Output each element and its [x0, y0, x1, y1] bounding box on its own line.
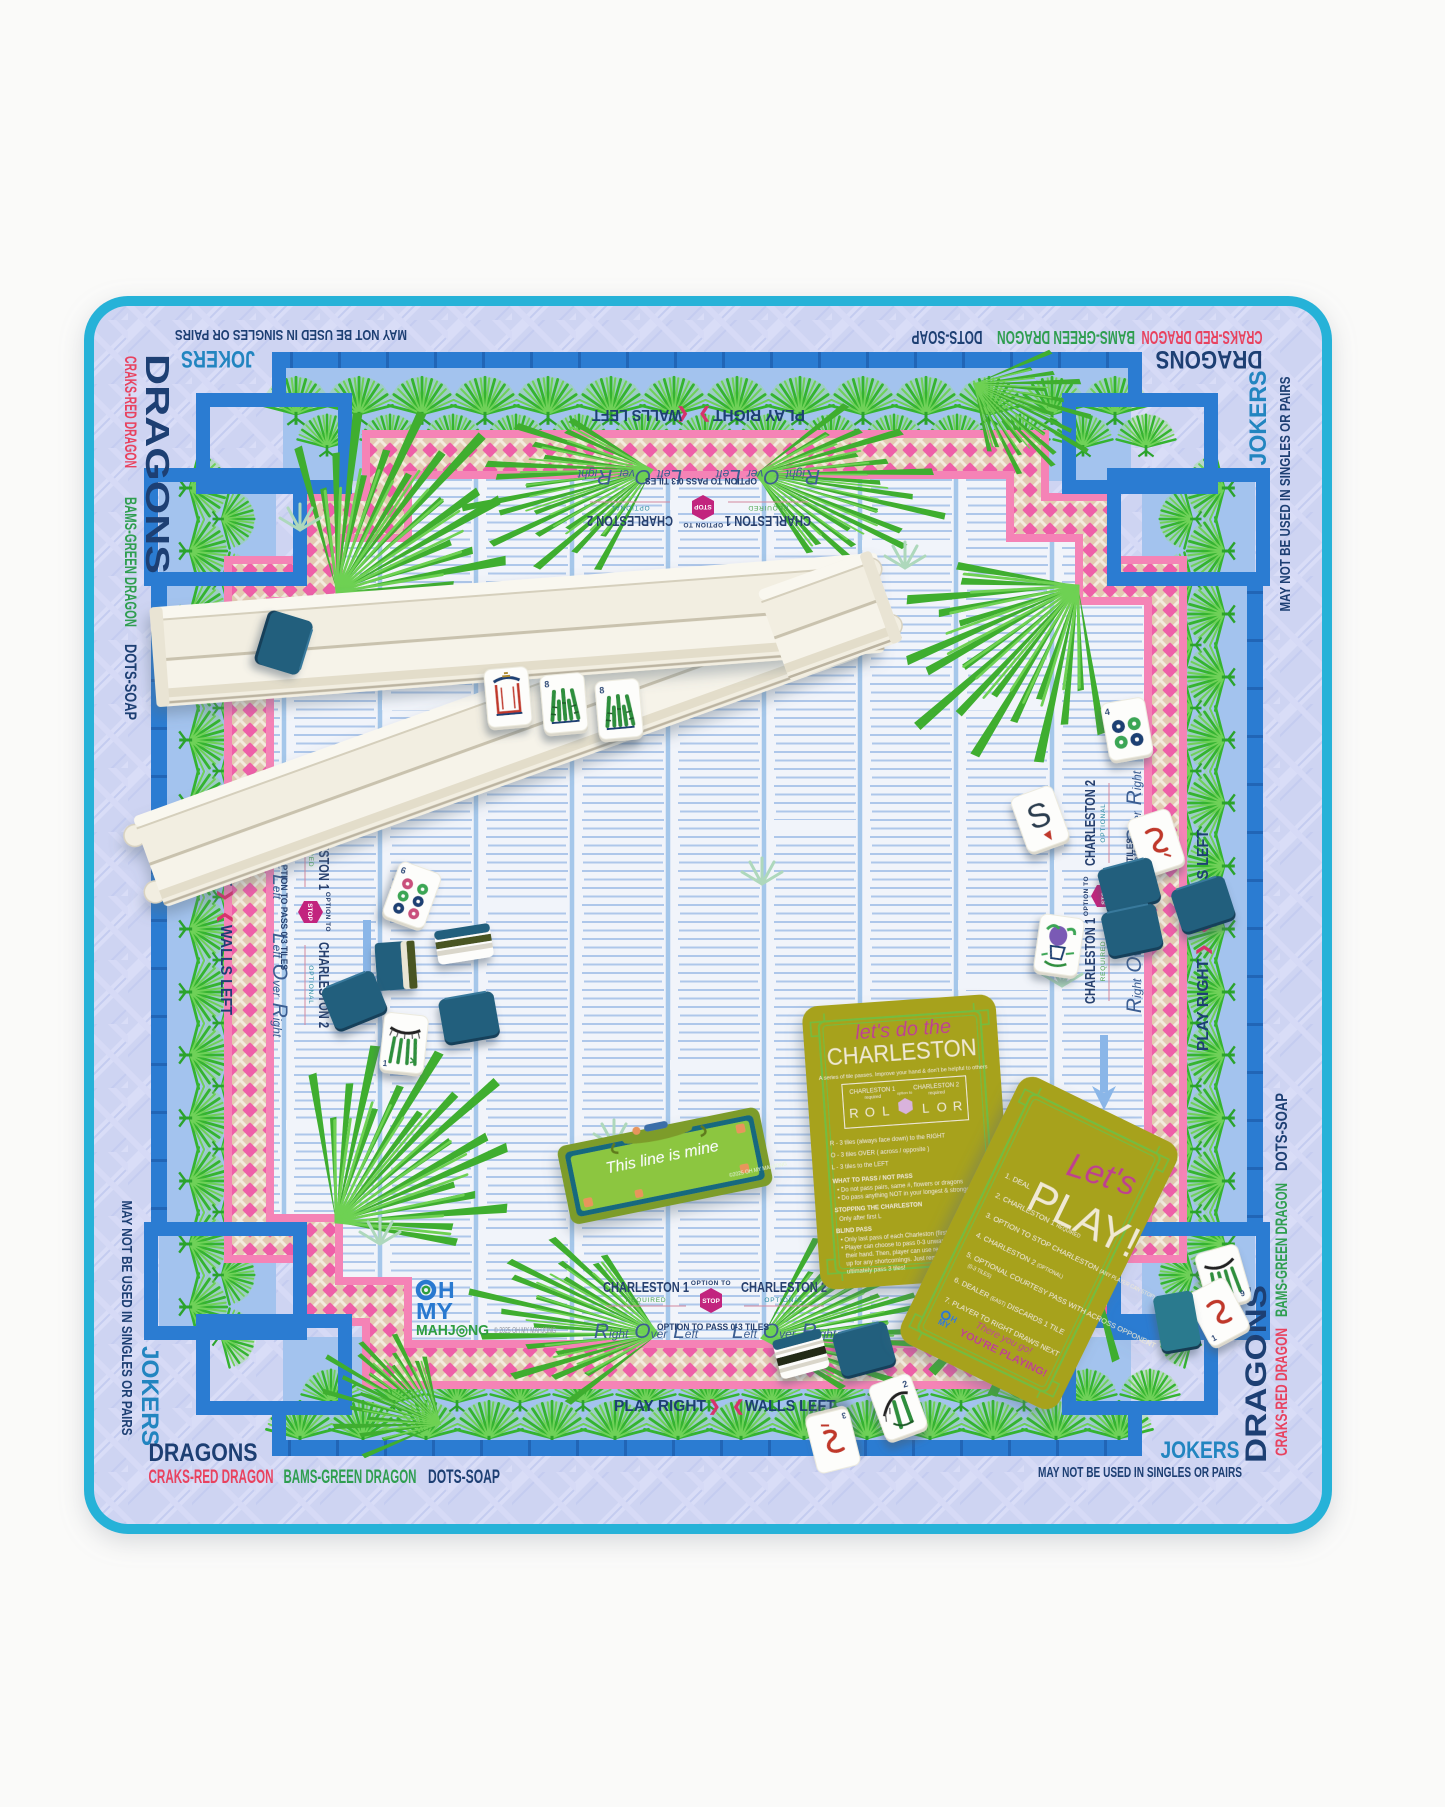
- svg-text:PLAY RIGHT: PLAY RIGHT: [713, 406, 805, 423]
- svg-text:MAHJ◎NG: MAHJ◎NG: [416, 1322, 489, 1339]
- svg-text:CRAKS-RED DRAGON: CRAKS-RED DRAGON: [121, 356, 140, 468]
- svg-text:❮: ❮: [732, 1398, 745, 1415]
- svg-text:CRAKS-RED DRAGON: CRAKS-RED DRAGON: [149, 1467, 274, 1488]
- svg-text:DRAGONS: DRAGONS: [149, 1439, 258, 1467]
- svg-text:O: O: [864, 1104, 875, 1120]
- svg-text:OPTION TO PASS 0-3 TILES: OPTION TO PASS 0-3 TILES: [657, 1322, 769, 1333]
- svg-text:BAMS-GREEN DRAGON: BAMS-GREEN DRAGON: [1272, 1183, 1291, 1317]
- svg-text:BAMS-GREEN DRAGON: BAMS-GREEN DRAGON: [121, 497, 140, 627]
- svg-text:WALLS LEFT: WALLS LEFT: [217, 925, 234, 1015]
- svg-text:❯: ❯: [708, 1398, 721, 1415]
- svg-text:R: R: [952, 1098, 962, 1114]
- svg-text:CHARLESTON 1: CHARLESTON 1: [603, 1279, 689, 1296]
- svg-text:JOKERS: JOKERS: [1245, 371, 1272, 466]
- svg-text:DRAGONS: DRAGONS: [139, 354, 176, 574]
- svg-text:OPTIONAL: OPTIONAL: [764, 1297, 803, 1304]
- svg-text:❯: ❯: [1195, 943, 1212, 956]
- svg-text:JOKERS: JOKERS: [1161, 1437, 1240, 1464]
- svg-text:L: L: [882, 1103, 890, 1118]
- svg-text:❯: ❯: [217, 889, 234, 902]
- svg-text:❮: ❮: [217, 911, 234, 924]
- svg-text:MAY NOT BE USED IN SINGLES OR: MAY NOT BE USED IN SINGLES OR PAIRS: [1277, 377, 1294, 612]
- svg-text:JOKERS: JOKERS: [181, 345, 255, 372]
- svg-text:STOP: STOP: [702, 1298, 720, 1305]
- svg-text:MAY NOT BE USED IN SINGLES OR: MAY NOT BE USED IN SINGLES OR PAIRS: [118, 1201, 135, 1436]
- svg-text:L: L: [922, 1100, 930, 1115]
- svg-text:MAY NOT BE USED IN SINGLES OR: MAY NOT BE USED IN SINGLES OR PAIRS: [175, 326, 407, 343]
- svg-text:8: 8: [544, 679, 550, 689]
- svg-text:PLAY RIGHT: PLAY RIGHT: [614, 1398, 706, 1415]
- svg-text:DOTS-SOAP: DOTS-SOAP: [912, 327, 983, 347]
- svg-text:MY: MY: [416, 1298, 453, 1324]
- svg-text:DRAGONS: DRAGONS: [1240, 1285, 1273, 1463]
- svg-text:CHARLESTON 2: CHARLESTON 2: [741, 1279, 827, 1296]
- svg-text:WALLS LEFT: WALLS LEFT: [592, 406, 682, 423]
- svg-text:REQUIRED: REQUIRED: [626, 1297, 667, 1304]
- svg-text:DOTS-SOAP: DOTS-SOAP: [1272, 1093, 1291, 1171]
- svg-text:BAMS-GREEN DRAGON: BAMS-GREEN DRAGON: [997, 327, 1135, 347]
- svg-text:❯: ❯: [698, 406, 711, 423]
- svg-text:PLAY RIGHT: PLAY RIGHT: [1195, 959, 1212, 1051]
- svg-text:JOKERS: JOKERS: [136, 1346, 163, 1446]
- svg-text:R: R: [849, 1105, 859, 1121]
- svg-text:CRAKS-RED DRAGON: CRAKS-RED DRAGON: [1272, 1328, 1291, 1456]
- svg-text:CRAKS-RED DRAGON: CRAKS-RED DRAGON: [1142, 327, 1263, 347]
- svg-text:MAY NOT BE USED IN SINGLES OR: MAY NOT BE USED IN SINGLES OR PAIRS: [1038, 1464, 1242, 1481]
- svg-text:DRAGONS: DRAGONS: [1156, 345, 1263, 373]
- svg-text:DOTS-SOAP: DOTS-SOAP: [121, 644, 140, 720]
- svg-text:DOTS-SOAP: DOTS-SOAP: [428, 1467, 500, 1488]
- svg-text:© 2025 OH MY MAHJONG: © 2025 OH MY MAHJONG: [494, 1326, 556, 1335]
- svg-text:O: O: [936, 1099, 947, 1115]
- svg-text:BAMS-GREEN DRAGON: BAMS-GREEN DRAGON: [284, 1467, 417, 1488]
- svg-text:8: 8: [599, 685, 605, 695]
- svg-text:OPTION TO: OPTION TO: [691, 1280, 731, 1287]
